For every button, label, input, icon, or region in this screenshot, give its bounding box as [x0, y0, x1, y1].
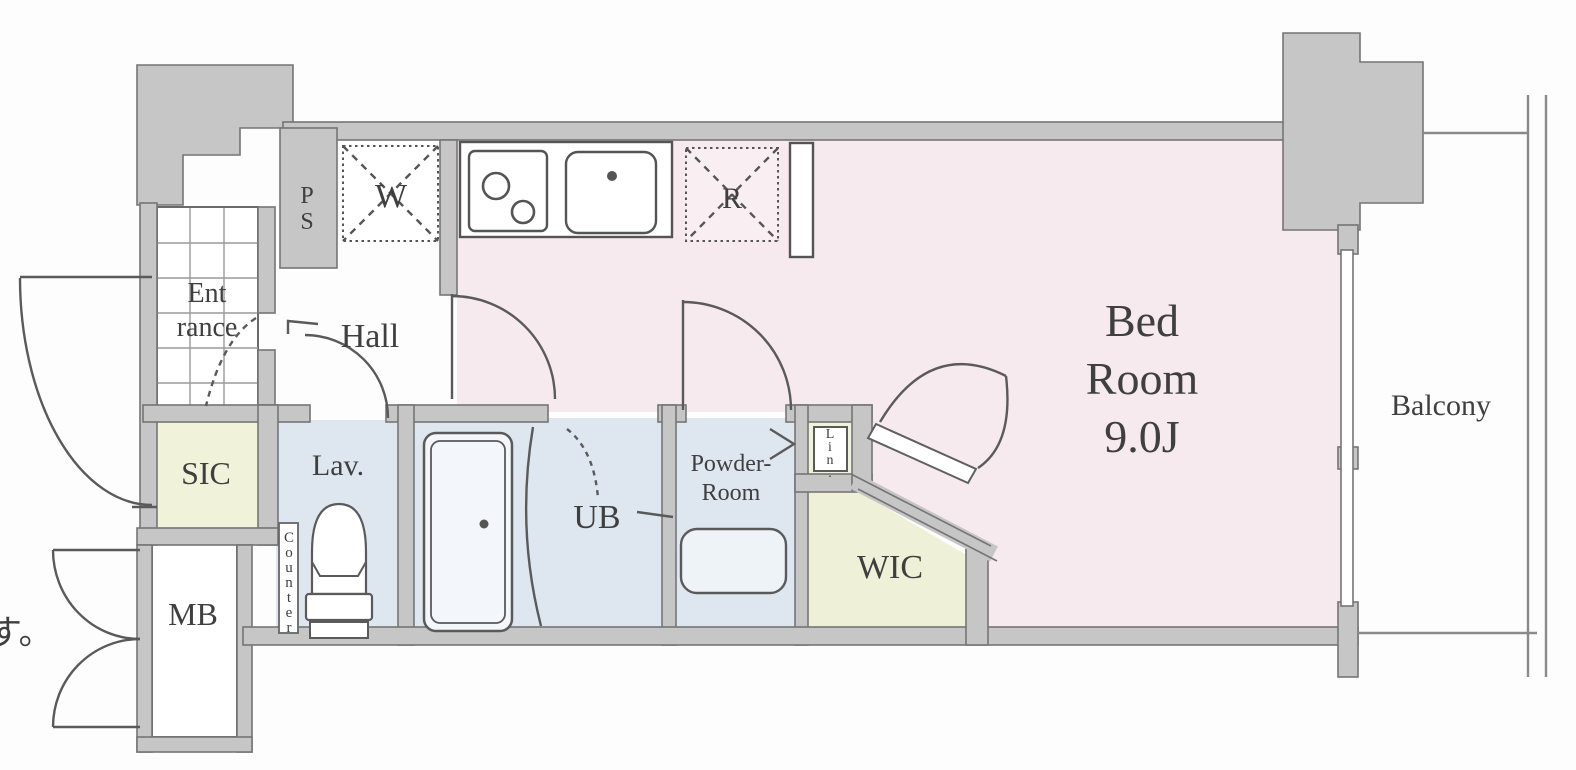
window-stub-bottom	[1338, 602, 1358, 677]
mb-door-arc-bottom	[53, 639, 140, 727]
label-sic: SIC	[181, 455, 231, 491]
lav-ub-wall	[398, 405, 414, 645]
label-hall: Hall	[341, 318, 400, 355]
bathtub-drain	[480, 520, 489, 529]
entrance-door-arc	[20, 278, 152, 505]
label-ps: PS	[300, 183, 313, 235]
label-powder-2: Room	[702, 480, 761, 506]
label-balcony: Balcony	[1391, 389, 1491, 422]
entrance-right-wall-b	[258, 350, 275, 410]
structural-pillar-topleft	[137, 65, 293, 205]
floor-plan-drawing: Ent rance Hall PS W R SIC MB Lav. Counte…	[0, 0, 1576, 770]
sic-mb-wall	[137, 528, 278, 545]
label-margin-note: す。	[0, 615, 53, 652]
vanity	[681, 529, 786, 593]
label-powder-1: Powder-	[691, 451, 772, 477]
ub-powder-wall	[662, 405, 676, 645]
sic-lav-wall	[258, 405, 278, 545]
top-wall	[283, 122, 1287, 140]
label-bedroom-1: Bed	[1105, 295, 1179, 346]
entrance-right-wall-a	[258, 207, 275, 313]
mb-right-wall	[237, 545, 252, 752]
mb-door-arc-top	[53, 550, 140, 639]
mb-left-wall	[137, 545, 152, 752]
label-entrance-1: Ent	[188, 278, 227, 309]
label-wic: WIC	[857, 549, 923, 586]
powder-room-floor	[674, 418, 797, 630]
sink-faucet	[607, 171, 617, 181]
kitchen-sink	[566, 152, 656, 233]
bottom-wall	[243, 627, 1358, 645]
duct-slab	[790, 143, 813, 257]
label-fridge: R	[722, 182, 742, 215]
mb-bottom-wall	[137, 737, 252, 752]
wic-right-wall	[966, 545, 988, 645]
toilet-tank	[306, 594, 372, 620]
label-bedroom-2: Room	[1086, 353, 1199, 404]
label-ub: UB	[573, 499, 620, 536]
left-wall	[140, 203, 157, 545]
kitchen-divider-wall	[440, 140, 457, 295]
mb-floor	[152, 543, 237, 737]
label-washer: W	[375, 178, 408, 215]
powder-lin-wall	[795, 405, 808, 645]
strip-top-wall-1	[143, 405, 310, 422]
label-entrance-2: rance	[177, 312, 238, 343]
label-lavatory: Lav.	[312, 449, 364, 482]
floor-plan-page: Ent rance Hall PS W R SIC MB Lav. Counte…	[0, 0, 1576, 770]
label-bedroom-3: 9.0J	[1104, 411, 1179, 462]
bedroom-window	[1341, 250, 1353, 606]
bathtub-outer	[424, 433, 512, 631]
toilet-bowl	[312, 504, 366, 594]
structural-pillar-topright	[1283, 33, 1423, 230]
toilet-base	[310, 622, 368, 638]
label-mb: MB	[168, 596, 218, 632]
hall-leader-line	[288, 321, 318, 334]
